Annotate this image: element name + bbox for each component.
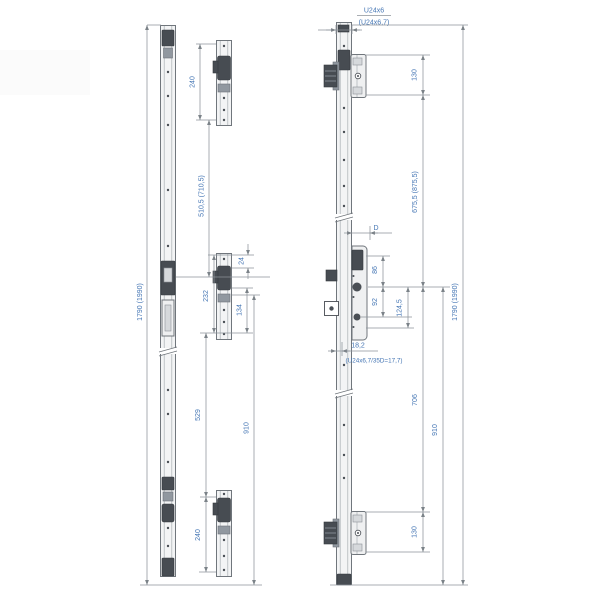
left-assembly-rear-view: 1790 (1990) 240 510,5 (710,5) 232 24 134… [137, 25, 270, 585]
dim-overall-left-label: 1790 (1990) [137, 283, 144, 321]
dim-182-label: 18,2 [351, 343, 365, 350]
dim-keeper-bottom-label: 130 [412, 526, 419, 538]
cylinder-hole [353, 283, 362, 292]
page-shading [0, 50, 90, 95]
dim-mid-to-bottom-label: 910 [244, 422, 251, 434]
dim-86-label: 86 [372, 266, 379, 274]
dim-top-extension-label: 240 [190, 76, 197, 88]
dim-top-to-center-label: 510,5 (710,5) [199, 175, 206, 217]
dim-center-to-lower-label: 529 [195, 409, 202, 421]
left-extension-bottom [213, 491, 232, 577]
left-lock-rail [159, 26, 177, 577]
left-extension-middle [213, 254, 232, 340]
right-assembly-front-view: U24x6 (U24x6,7) 130 675,5 (875,5) 706 [318, 8, 468, 586]
profile-label-alt: (U24x6,7) [359, 20, 390, 27]
dim-center-to-bottom-label: 910 [432, 424, 439, 436]
dim-124-label: 124,5 [397, 299, 404, 317]
left-dimensions: 1790 (1990) 240 510,5 (710,5) 232 24 134… [137, 25, 270, 585]
left-extension-top [213, 41, 232, 126]
technical-drawing-page: 1790 (1990) 240 510,5 (710,5) 232 24 134… [0, 0, 600, 600]
dim-mid-offset-label: 24 [239, 257, 246, 265]
dim-bottom-extension-label: 240 [195, 529, 202, 541]
dim-92-label: 92 [372, 298, 379, 306]
dim-mid-extension-label: 232 [203, 290, 210, 302]
lock-technical-drawing: 1790 (1990) 240 510,5 (710,5) 232 24 134… [0, 0, 600, 600]
dim-keeper-top-label: 130 [412, 69, 419, 81]
follower-hole [354, 314, 361, 321]
dim-top-span-label: 675,5 (875,5) [412, 171, 419, 213]
dim-backset-label: D [373, 225, 378, 232]
profile-label: U24x6 [364, 8, 384, 15]
profile-note: (U24x6,7/35D=17,7) [346, 358, 403, 365]
dim-bottom-span-label: 706 [412, 394, 419, 406]
dim-overall-right-label: 1790 (1990) [452, 283, 459, 321]
dim-mid-lower-label: 134 [237, 304, 244, 316]
